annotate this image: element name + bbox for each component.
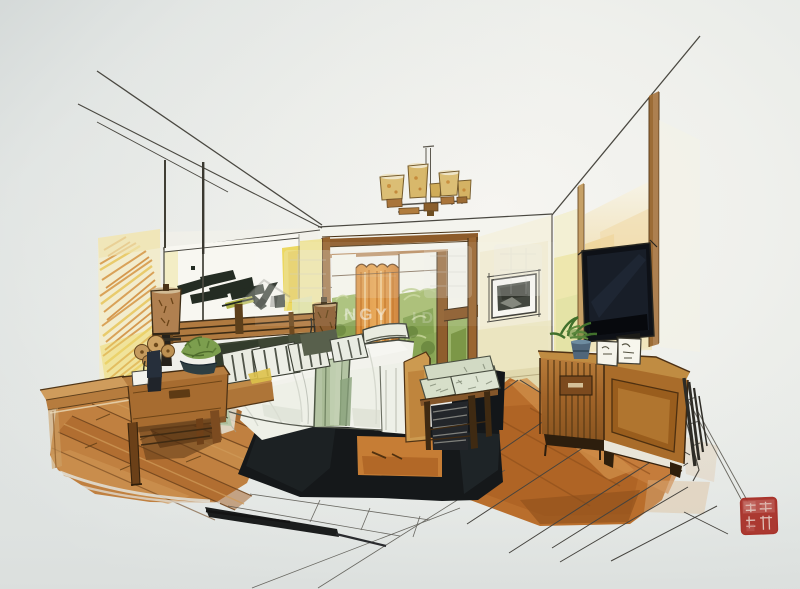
svg-text:NGY: NGY [344,305,390,324]
svg-text:ID: ID [412,310,438,327]
